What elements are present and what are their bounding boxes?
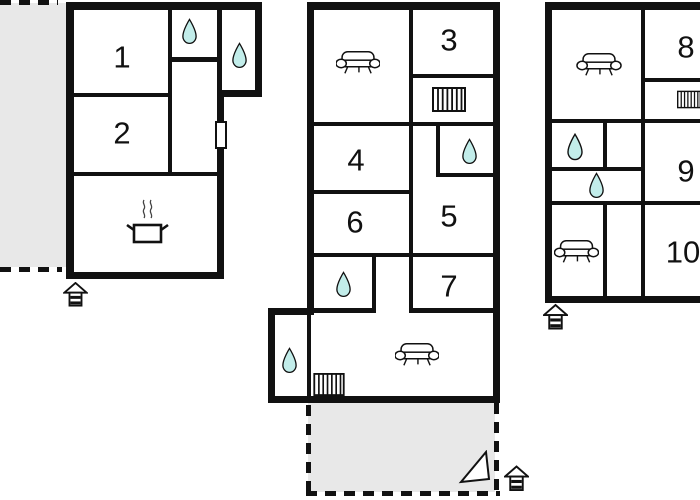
wall-segment xyxy=(545,2,552,303)
wall-segment xyxy=(219,90,262,97)
water-drop-icon xyxy=(461,138,478,165)
wall-segment xyxy=(372,257,376,310)
wall-segment xyxy=(255,2,262,97)
room-8-label: 8 xyxy=(677,32,694,63)
wall-segment xyxy=(552,201,700,205)
wall-segment xyxy=(217,10,222,90)
water-drop-icon xyxy=(231,42,248,69)
wall-segment xyxy=(74,172,217,176)
room-10-label: 10 xyxy=(666,237,700,268)
entrance-arrow-icon xyxy=(543,303,568,331)
terrace-left xyxy=(0,3,66,267)
wall-segment xyxy=(217,90,224,279)
water-drop-icon xyxy=(181,18,198,45)
wall-segment xyxy=(409,308,493,313)
room-5-label: 5 xyxy=(440,201,457,232)
wall-segment xyxy=(66,272,224,279)
room-6-label: 6 xyxy=(346,207,363,238)
entrance-arrow-icon xyxy=(63,282,88,307)
sofa-icon xyxy=(336,48,380,78)
wall-segment xyxy=(545,296,700,303)
water-drop-icon xyxy=(335,271,352,298)
sofa-icon xyxy=(576,50,622,80)
door-marker xyxy=(215,121,227,149)
wall-segment xyxy=(307,2,500,10)
wall-segment xyxy=(307,2,314,315)
wall-segment xyxy=(641,10,645,296)
terrace-dashed-border xyxy=(494,403,499,493)
wall-segment xyxy=(552,167,641,171)
room-4-label: 4 xyxy=(347,145,364,176)
sofa-icon xyxy=(395,340,439,370)
wall-segment xyxy=(545,2,700,10)
wall-segment xyxy=(307,313,311,396)
radiator-icon xyxy=(432,87,466,112)
kitchen-stove-icon xyxy=(124,197,170,247)
wall-segment xyxy=(66,2,74,279)
terrace-dashed-border xyxy=(0,0,58,5)
wall-segment xyxy=(603,123,607,167)
wall-segment xyxy=(413,74,493,78)
wall-segment xyxy=(314,253,493,257)
wall-segment xyxy=(436,126,440,175)
wall-segment xyxy=(436,173,493,177)
floor-plan: 12 34567 xyxy=(0,0,700,500)
sofa-icon xyxy=(554,237,599,267)
wall-segment xyxy=(409,10,413,310)
wall-segment xyxy=(168,10,172,176)
north-triangle-icon xyxy=(458,450,493,485)
wall-segment xyxy=(268,396,500,403)
room-3-label: 3 xyxy=(440,25,457,56)
wall-segment xyxy=(314,190,409,194)
radiator-icon xyxy=(677,87,700,112)
water-drop-icon xyxy=(566,133,584,161)
wall-segment xyxy=(314,122,493,126)
radiator-icon xyxy=(312,373,346,396)
water-drop-icon xyxy=(281,347,298,374)
wall-segment xyxy=(74,93,168,97)
wall-segment xyxy=(645,78,700,82)
wall-segment xyxy=(603,205,607,296)
water-drop-icon xyxy=(588,172,605,199)
wall-segment xyxy=(66,2,262,10)
terrace-dashed-border xyxy=(306,491,500,496)
room-1-label: 1 xyxy=(113,42,130,73)
terrace-dashed-border xyxy=(306,405,311,493)
room-9-label: 9 xyxy=(677,156,694,187)
wall-segment xyxy=(172,57,217,62)
room-2-label: 2 xyxy=(113,118,130,149)
wall-segment xyxy=(268,308,275,403)
room-7-label: 7 xyxy=(440,271,457,302)
entrance-arrow-icon xyxy=(504,465,529,492)
wall-segment xyxy=(309,308,376,313)
terrace-dashed-border xyxy=(0,267,62,272)
wall-segment xyxy=(552,119,700,123)
wall-segment xyxy=(493,2,500,403)
